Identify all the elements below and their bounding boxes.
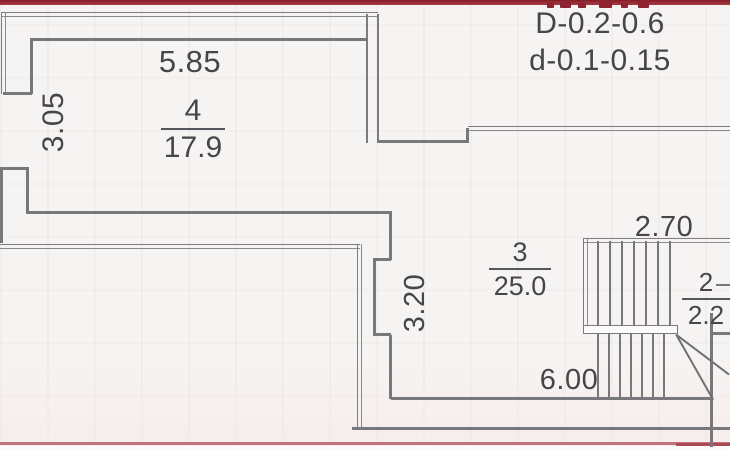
wall-left-outer-mid [0, 167, 3, 243]
stair-tread-line [663, 334, 665, 398]
wall-left-mid-pier [26, 167, 29, 213]
dim-mid-height: 3.20 [399, 263, 433, 343]
stair-tread-line [630, 334, 632, 398]
room4-number: 4 [161, 95, 225, 127]
legend-line1: D-0.2-0.6 [515, 5, 685, 42]
wall-lowerroom-right [357, 244, 362, 430]
wall-left-outer-upper [1, 12, 6, 94]
floor-plan: 5.85 3.05 3.20 2.70 6.00 D-0.2-0.6 d-0.1… [0, 0, 730, 450]
wall-left-pier [30, 38, 33, 94]
wall-right-outer-upper [366, 14, 379, 143]
room3-label: 3 25.0 [489, 238, 551, 300]
wall-room3-left-c [389, 335, 392, 399]
stair-tread-line [645, 241, 647, 326]
fraction-bar [161, 128, 225, 130]
room2-area: 2.2 [682, 302, 730, 330]
stair-tread-line [597, 241, 599, 326]
stair-direction-line [676, 334, 730, 375]
wall-room4-bottom [26, 211, 392, 214]
room3-area: 25.0 [489, 272, 551, 301]
room3-number: 3 [489, 238, 551, 267]
legend-block: D-0.2-0.6 d-0.1-0.15 [515, 5, 685, 79]
stair-tread-line [641, 334, 643, 398]
wall-top-right-outer [468, 126, 730, 131]
wall-room3-left-a [389, 213, 392, 260]
wall-left-pier-bottom [3, 92, 32, 95]
dim-left-height: 3.05 [37, 82, 71, 162]
wall-top-outer [2, 12, 378, 17]
stair-landing-bar [583, 325, 678, 334]
dim-bottom-width: 6.00 [529, 364, 609, 397]
stair-tread-line [657, 241, 659, 326]
wall-lowerroom-top [0, 244, 360, 249]
room2-leader-dash [716, 284, 730, 286]
room4-label: 4 17.9 [161, 95, 225, 164]
wall-room3-notch-top [373, 258, 391, 261]
stair-tread-line [609, 241, 611, 326]
room2-number: 2 [682, 269, 730, 297]
wall-bottom-outer [352, 427, 730, 430]
wall-step-lower [377, 140, 469, 143]
wall-room4-top [30, 38, 368, 41]
stair-tread-line [633, 241, 635, 326]
wall-room3-left-b [373, 258, 376, 335]
stair-left-wall [583, 238, 588, 334]
dim-top-width: 5.85 [140, 44, 240, 80]
dim-stair-width: 2.70 [624, 211, 704, 244]
fraction-bar [489, 268, 551, 270]
stair-direction-line [676, 334, 714, 400]
wall-room2-top [710, 332, 730, 335]
room4-area: 17.9 [161, 132, 225, 164]
stair-tread-line [619, 334, 621, 398]
red-bottom-border [0, 442, 730, 445]
stair-tread-line [669, 241, 671, 326]
paper-strip-below-border [0, 446, 730, 450]
stair-tread-line [621, 241, 623, 326]
legend-line2: d-0.1-0.15 [515, 42, 685, 79]
wall-left-mid-top [0, 167, 28, 170]
stair-tread-line [652, 334, 654, 398]
room2-label: 2 2.2 [682, 269, 730, 329]
